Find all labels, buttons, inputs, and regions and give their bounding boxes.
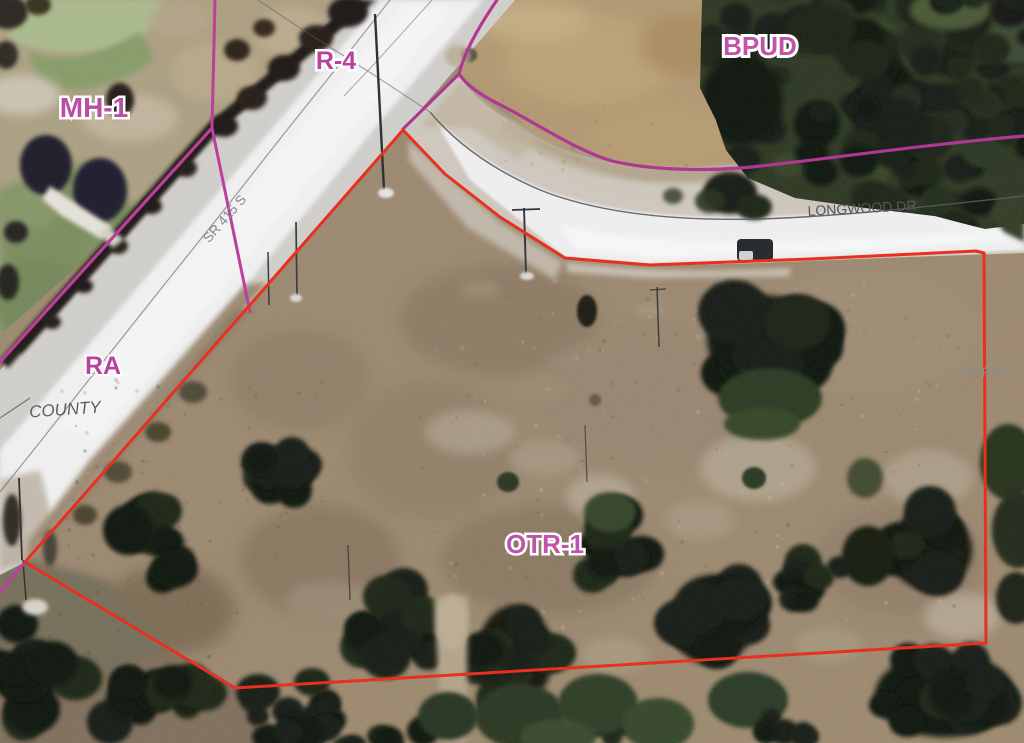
svg-text:R-4: R-4 [316,47,356,75]
svg-text:BPUD: BPUD [723,31,797,61]
svg-text:RA: RA [85,352,121,380]
svg-text:MFRMLS: MFRMLS [961,364,1020,380]
svg-text:OTR-1: OTR-1 [506,529,584,559]
svg-text:MH-1: MH-1 [60,92,128,123]
